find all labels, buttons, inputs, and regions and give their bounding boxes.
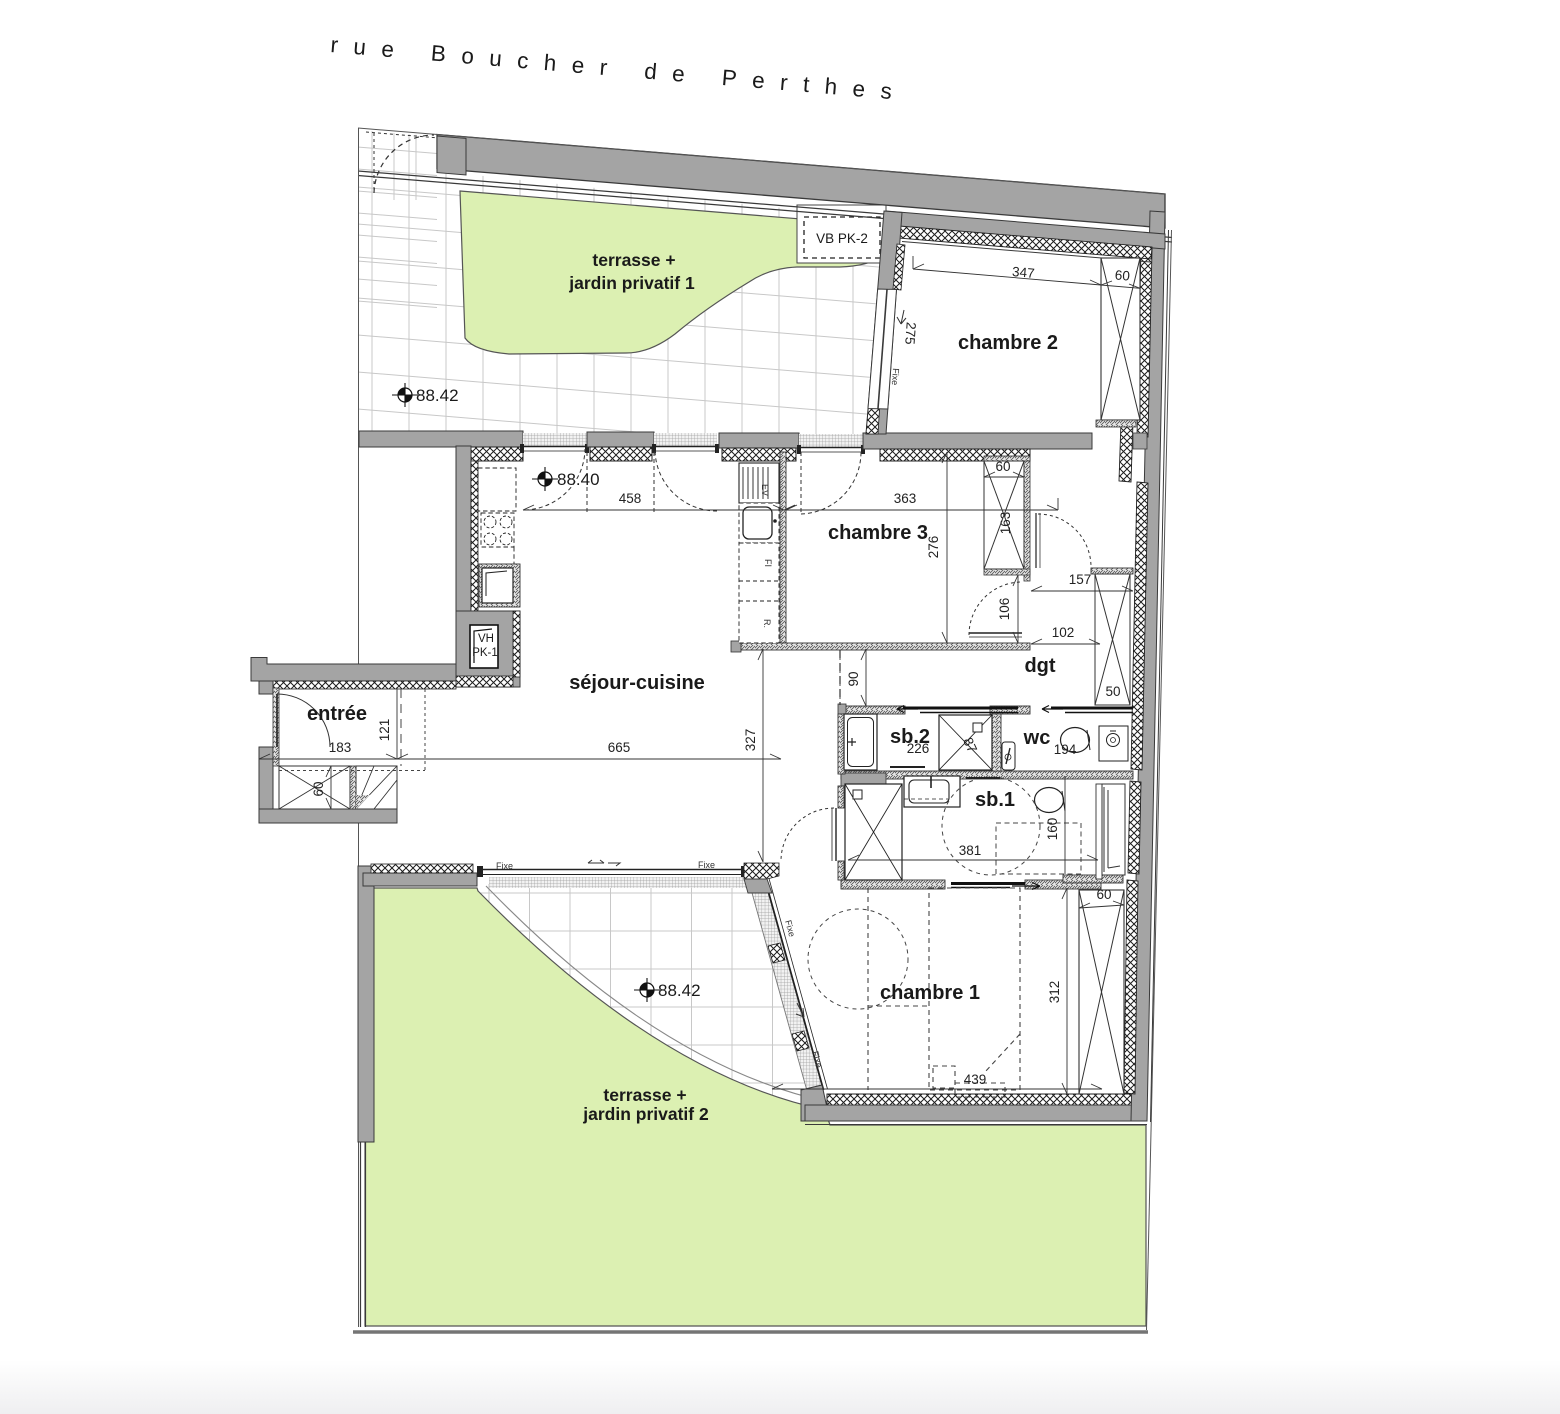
- svg-text:VB PK-2: VB PK-2: [816, 231, 868, 246]
- svg-text:88.42: 88.42: [658, 981, 701, 1000]
- svg-text:194: 194: [1054, 742, 1077, 757]
- svg-text:dgt: dgt: [1024, 655, 1055, 677]
- svg-text:terrasse +: terrasse +: [603, 1085, 686, 1105]
- svg-text:363: 363: [894, 491, 917, 506]
- svg-text:275: 275: [902, 322, 919, 346]
- svg-text:88.42: 88.42: [416, 386, 459, 405]
- svg-text:VH: VH: [478, 633, 494, 645]
- svg-text:312: 312: [1047, 981, 1062, 1004]
- svg-text:183: 183: [329, 740, 352, 755]
- svg-text:160: 160: [1045, 818, 1060, 841]
- svg-text:sb.2: sb.2: [890, 726, 930, 748]
- svg-text:jardin privatif 1: jardin privatif 1: [568, 273, 695, 293]
- svg-text:terrasse +: terrasse +: [592, 250, 675, 270]
- svg-text:381: 381: [959, 843, 982, 858]
- svg-text:jardin privatif 2: jardin privatif 2: [582, 1104, 709, 1124]
- svg-text:60: 60: [995, 459, 1010, 474]
- svg-text:chambre 3: chambre 3: [828, 522, 928, 544]
- svg-text:60: 60: [311, 781, 326, 796]
- svg-text:90: 90: [846, 671, 861, 686]
- svg-text:121: 121: [377, 719, 392, 742]
- svg-text:157: 157: [1069, 572, 1092, 587]
- svg-text:chambre 1: chambre 1: [880, 982, 980, 1004]
- svg-text:Fixe: Fixe: [496, 861, 513, 871]
- svg-text:PK-1: PK-1: [472, 647, 498, 659]
- svg-text:séjour-cuisine: séjour-cuisine: [569, 672, 705, 694]
- svg-text:347: 347: [1012, 264, 1036, 281]
- svg-text:FI: FI: [763, 559, 773, 567]
- svg-text:276: 276: [926, 536, 941, 559]
- svg-text:Fixe: Fixe: [890, 368, 901, 386]
- svg-text:entrée: entrée: [307, 703, 367, 725]
- svg-text:EV: EV: [760, 484, 770, 496]
- svg-text:chambre 2: chambre 2: [958, 332, 1058, 354]
- svg-text:458: 458: [619, 491, 642, 506]
- svg-text:102: 102: [1052, 625, 1075, 640]
- svg-text:163: 163: [998, 512, 1013, 535]
- svg-text:327: 327: [743, 729, 758, 752]
- svg-text:sb.1: sb.1: [975, 789, 1015, 811]
- svg-text:439: 439: [964, 1072, 987, 1087]
- svg-text:60: 60: [1096, 887, 1111, 902]
- svg-text:Fixe: Fixe: [698, 860, 715, 870]
- svg-text:106: 106: [997, 598, 1012, 621]
- svg-text:50: 50: [1105, 684, 1120, 699]
- svg-text:665: 665: [608, 740, 631, 755]
- svg-text:wc: wc: [1023, 727, 1051, 749]
- svg-text:R.: R.: [762, 619, 772, 628]
- svg-text:88.40: 88.40: [557, 470, 600, 489]
- svg-text:60: 60: [1114, 267, 1130, 283]
